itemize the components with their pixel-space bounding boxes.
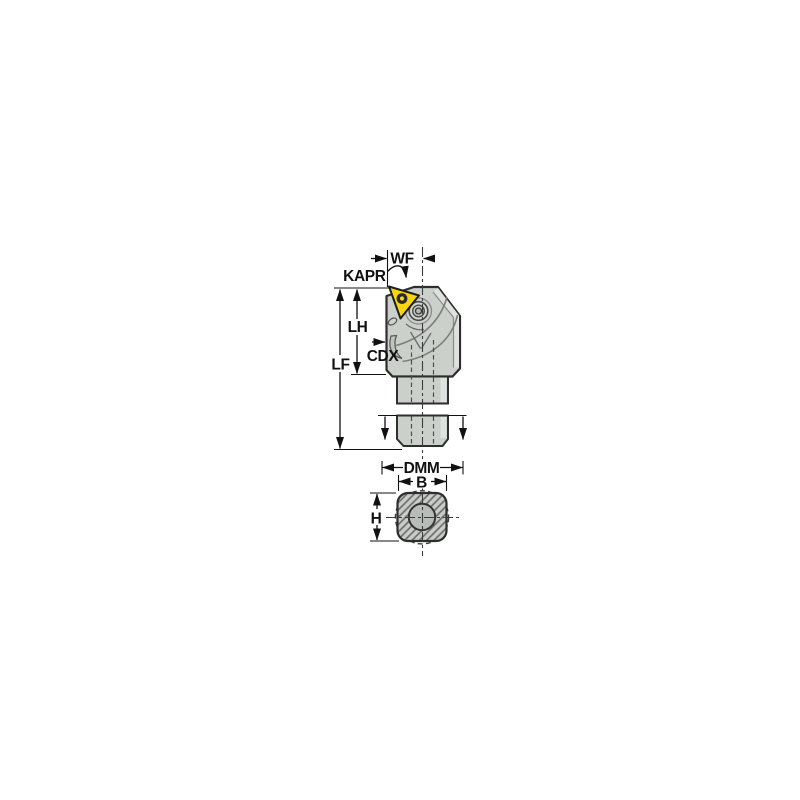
drawing-canvas: WF KAPR LH CDX LF DMM B H bbox=[0, 0, 800, 800]
label-b: B bbox=[416, 475, 427, 492]
shank-upper-highlight bbox=[441, 378, 447, 402]
clamp-screw-center bbox=[416, 308, 422, 314]
label-lf: LF bbox=[331, 357, 349, 374]
shank-lower-highlight bbox=[441, 417, 447, 438]
tool-side-view bbox=[387, 287, 461, 447]
dim-kapr-curved-arrow bbox=[388, 266, 407, 278]
tool-holder-drawing: WF KAPR LH CDX LF DMM B H bbox=[0, 0, 800, 800]
label-h: H bbox=[371, 511, 382, 528]
label-lh: LH bbox=[348, 319, 368, 336]
label-cdx: CDX bbox=[367, 348, 400, 365]
insert-hole-center bbox=[400, 296, 404, 300]
label-kapr: KAPR bbox=[343, 268, 386, 285]
label-wf: WF bbox=[390, 251, 413, 268]
